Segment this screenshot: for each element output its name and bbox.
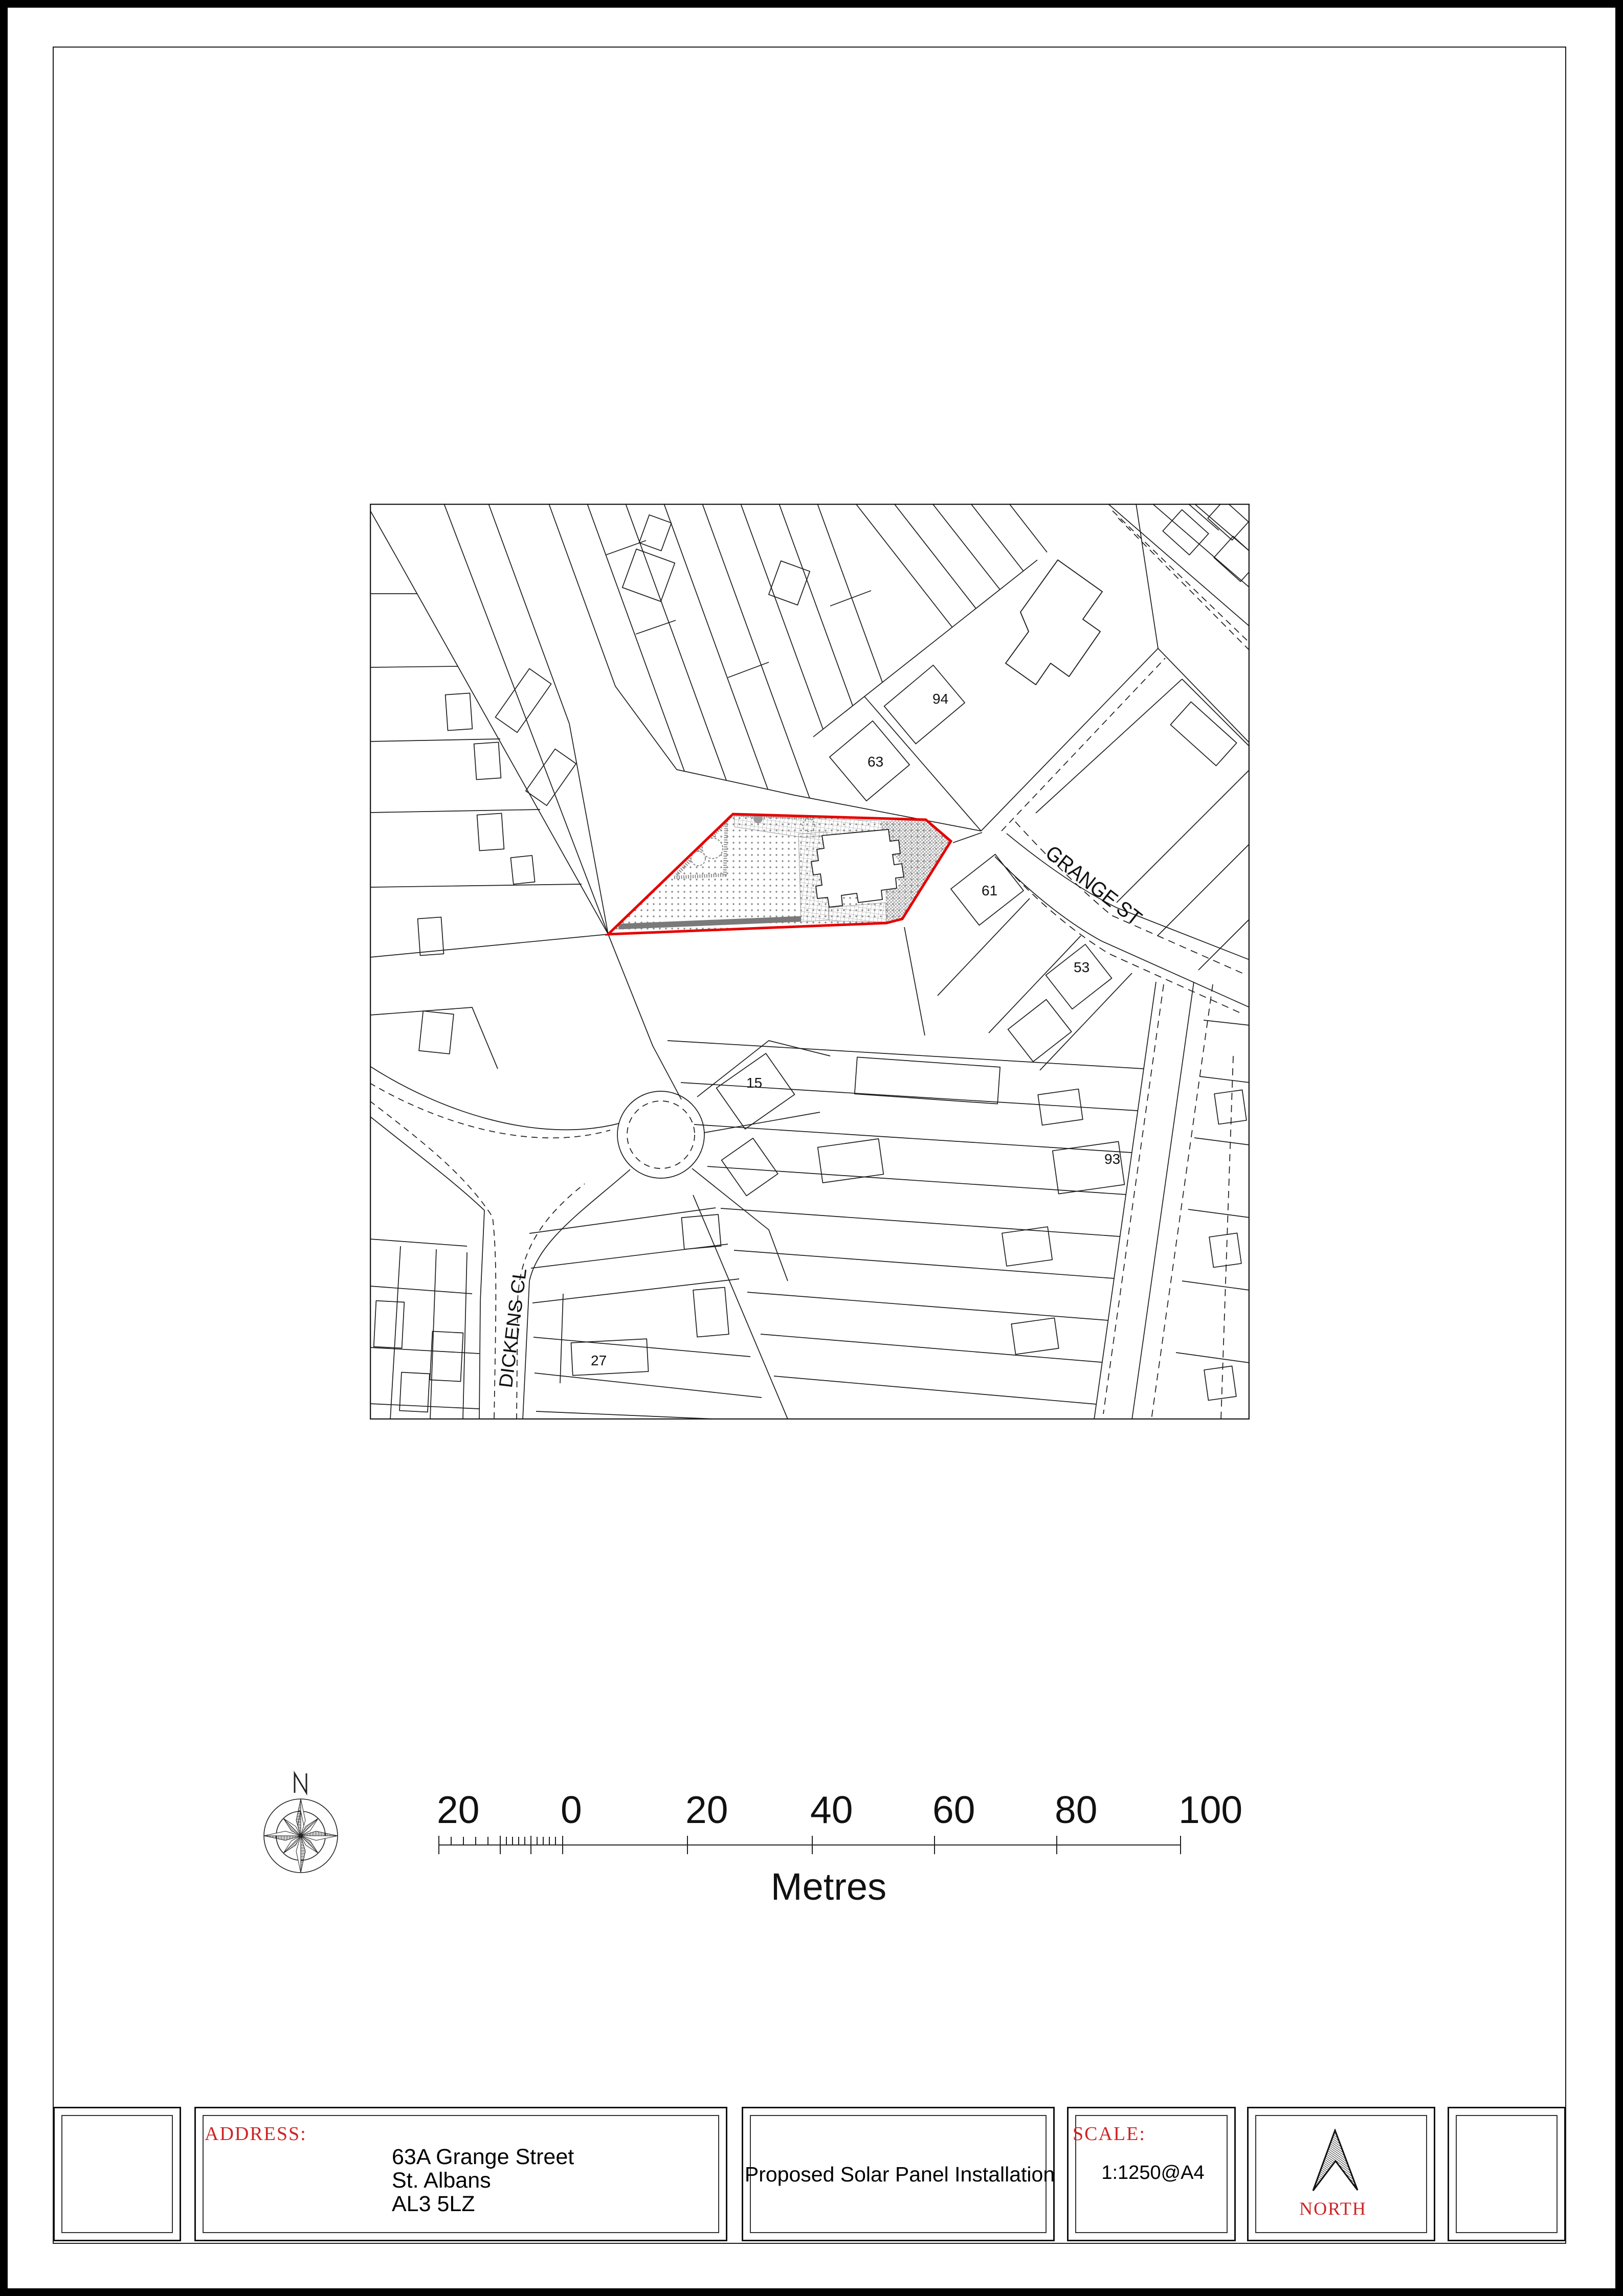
svg-text:93: 93 — [1104, 1151, 1120, 1167]
svg-text:GRANGE ST: GRANGE ST — [1041, 841, 1146, 930]
svg-text:40: 40 — [810, 1788, 853, 1831]
svg-text:61: 61 — [982, 883, 997, 898]
svg-text:27: 27 — [591, 1353, 607, 1368]
svg-text:63: 63 — [868, 754, 883, 770]
svg-text:94: 94 — [932, 691, 948, 707]
svg-text:100: 100 — [1179, 1788, 1242, 1831]
svg-text:53: 53 — [1074, 959, 1090, 975]
svg-text:Metres: Metres — [771, 1865, 886, 1907]
svg-text:20: 20 — [437, 1788, 479, 1831]
svg-text:60: 60 — [932, 1788, 975, 1831]
svg-text:15: 15 — [746, 1075, 762, 1091]
svg-text:0: 0 — [561, 1788, 582, 1831]
svg-text:80: 80 — [1055, 1788, 1097, 1831]
svg-text:20: 20 — [685, 1788, 728, 1831]
